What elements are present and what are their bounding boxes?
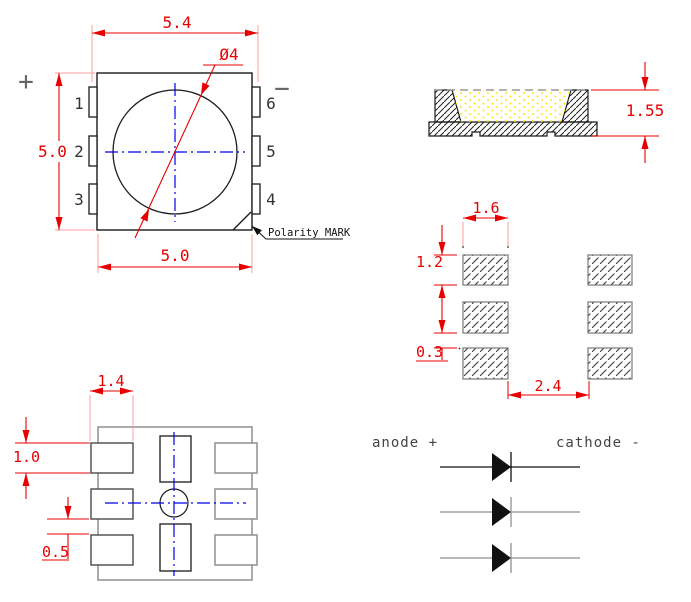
diode-triangle-2 (492, 498, 511, 526)
side-view: 1.55 (429, 62, 664, 163)
lead-pin-2 (89, 136, 97, 166)
package-height-label: 1.55 (626, 101, 665, 120)
pad-right-2 (588, 302, 632, 333)
lead-pin-3 (89, 184, 97, 214)
dimension-bottom-row-gap: 0.5 (42, 497, 89, 561)
dimension-body-width: 5.0 (98, 234, 252, 273)
overall-width-label: 5.4 (163, 13, 192, 32)
bottom-pad-left-2 (91, 489, 133, 519)
dimension-bottom-pad-height: 1.0 (13, 417, 90, 499)
bottom-view: 1.4 1.0 0.5 (13, 372, 257, 580)
pin-number-4: 4 (266, 190, 276, 209)
lens-diameter-label: Ø4 (219, 45, 238, 64)
lead-pin-6 (252, 87, 260, 117)
pad-left-2 (463, 302, 508, 333)
pin-number-3: 3 (74, 190, 84, 209)
pin-number-6: 6 (266, 94, 276, 113)
pad-width-label: 1.6 (472, 199, 499, 217)
polarity-diagram: anode + cathode - (372, 435, 641, 573)
solder-pads (463, 255, 632, 379)
bottom-pad-left-3 (91, 535, 133, 565)
dimension-row-gap: 0.3 (416, 333, 460, 361)
dimension-column-gap: 2.4 (508, 377, 589, 399)
pad-right-3 (588, 348, 632, 379)
pad-left-1 (463, 255, 508, 285)
dimension-package-height: 1.55 (591, 62, 664, 163)
diode-symbol-2 (440, 497, 580, 527)
dimension-pad-width: 1.6 (462, 199, 509, 248)
pad-height-label: 1.2 (416, 253, 443, 271)
bottom-right-pads (215, 443, 257, 565)
lead-pin-5 (252, 136, 260, 166)
pad-right-1 (588, 255, 632, 285)
anode-label: anode + (372, 435, 438, 451)
drawing-sheet: Ø4 5.4 5.0 5.0 Polarity MARK + (0, 0, 691, 602)
bottom-pad-left-1 (91, 443, 133, 473)
bottom-pad-width-label: 1.4 (97, 372, 124, 390)
lead-pin-1 (89, 87, 97, 117)
plus-icon: + (18, 67, 34, 97)
polarity-mark-callout: Polarity MARK (252, 226, 351, 239)
body-width-label: 5.0 (161, 246, 190, 265)
bottom-pad-right-2 (215, 489, 257, 519)
pin-number-2: 2 (74, 142, 84, 161)
body-height-label: 5.0 (38, 142, 67, 161)
pin-number-1: 1 (74, 94, 84, 113)
bottom-pad-height-label: 1.0 (13, 448, 40, 466)
pad-left-3 (463, 348, 508, 379)
encapsulant-fill (452, 90, 571, 122)
pad-layout-view: 1.6 1.2 0.3 2.4 (416, 199, 632, 399)
dimension-pad-height: 1.2 (416, 225, 457, 333)
center-pad-bottom (160, 524, 191, 571)
base-plate-section (429, 122, 597, 136)
row-gap-label: 0.3 (416, 343, 443, 361)
dimension-body-height: 5.0 (38, 73, 95, 230)
diode-symbol-1 (440, 452, 580, 482)
center-pad-top (160, 436, 191, 482)
led-package-technical-drawing: Ø4 5.4 5.0 5.0 Polarity MARK + (0, 0, 691, 602)
polarity-mark-label: Polarity MARK (268, 227, 351, 239)
minus-icon: − (274, 74, 290, 104)
diode-triangle-1 (492, 453, 511, 481)
diode-triangle-3 (492, 544, 511, 572)
lead-pin-4 (252, 184, 260, 214)
bottom-left-pads (91, 443, 133, 565)
pin-number-5: 5 (266, 142, 276, 161)
cathode-label: cathode - (556, 435, 641, 451)
diode-symbol-3 (440, 543, 580, 573)
bottom-pad-right-3 (215, 535, 257, 565)
top-view: Ø4 5.4 5.0 5.0 Polarity MARK + (18, 13, 351, 273)
column-gap-label: 2.4 (534, 377, 561, 395)
bottom-pad-right-1 (215, 443, 257, 473)
bottom-row-gap-label: 0.5 (42, 543, 69, 561)
